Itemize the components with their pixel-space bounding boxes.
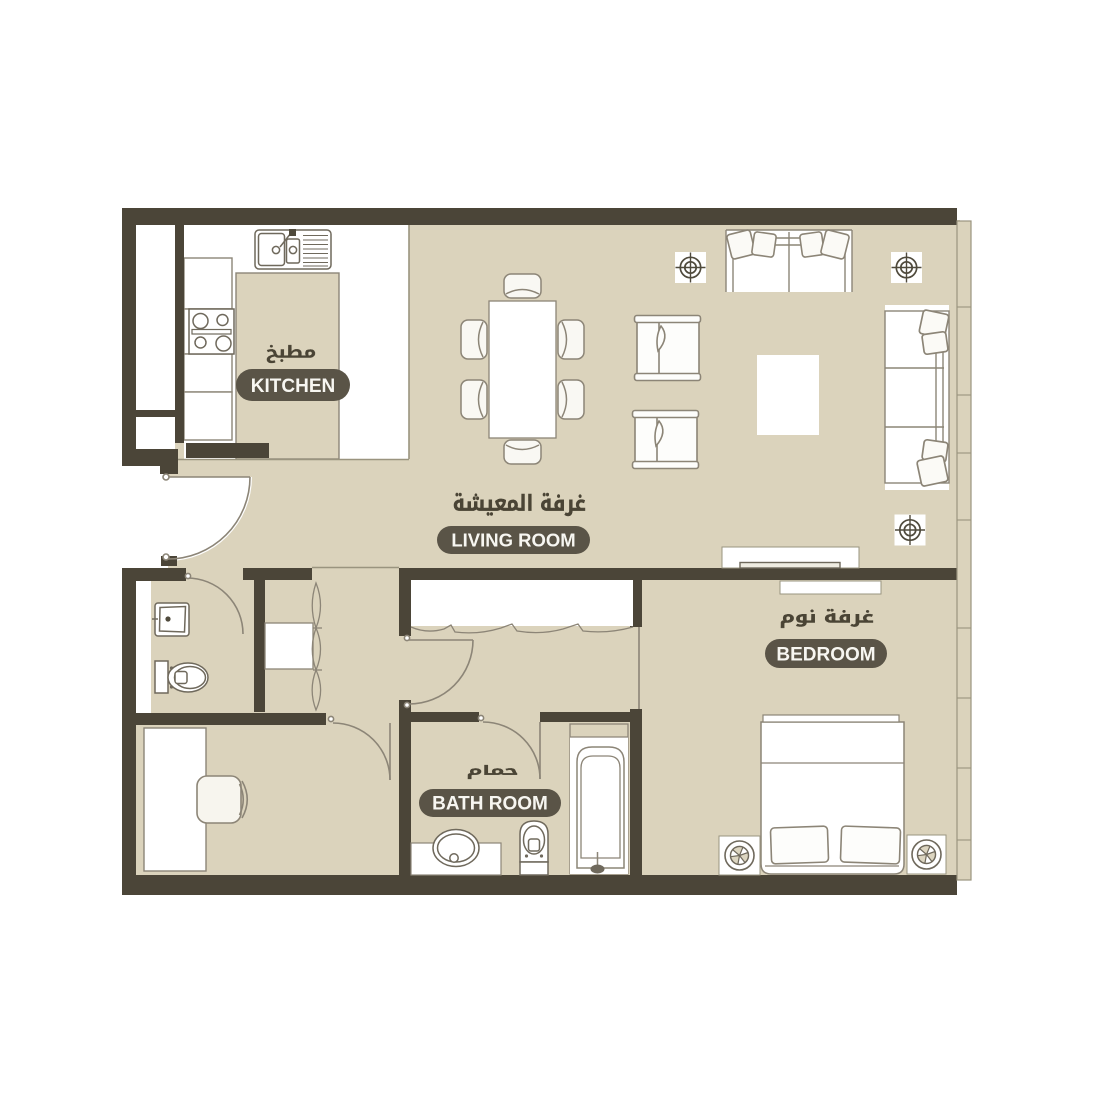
svg-text:KITCHEN: KITCHEN xyxy=(251,376,335,397)
svg-text:BEDROOM: BEDROOM xyxy=(776,645,875,666)
svg-text:BATH ROOM: BATH ROOM xyxy=(432,794,548,815)
svg-text:LIVING ROOM: LIVING ROOM xyxy=(451,530,575,551)
